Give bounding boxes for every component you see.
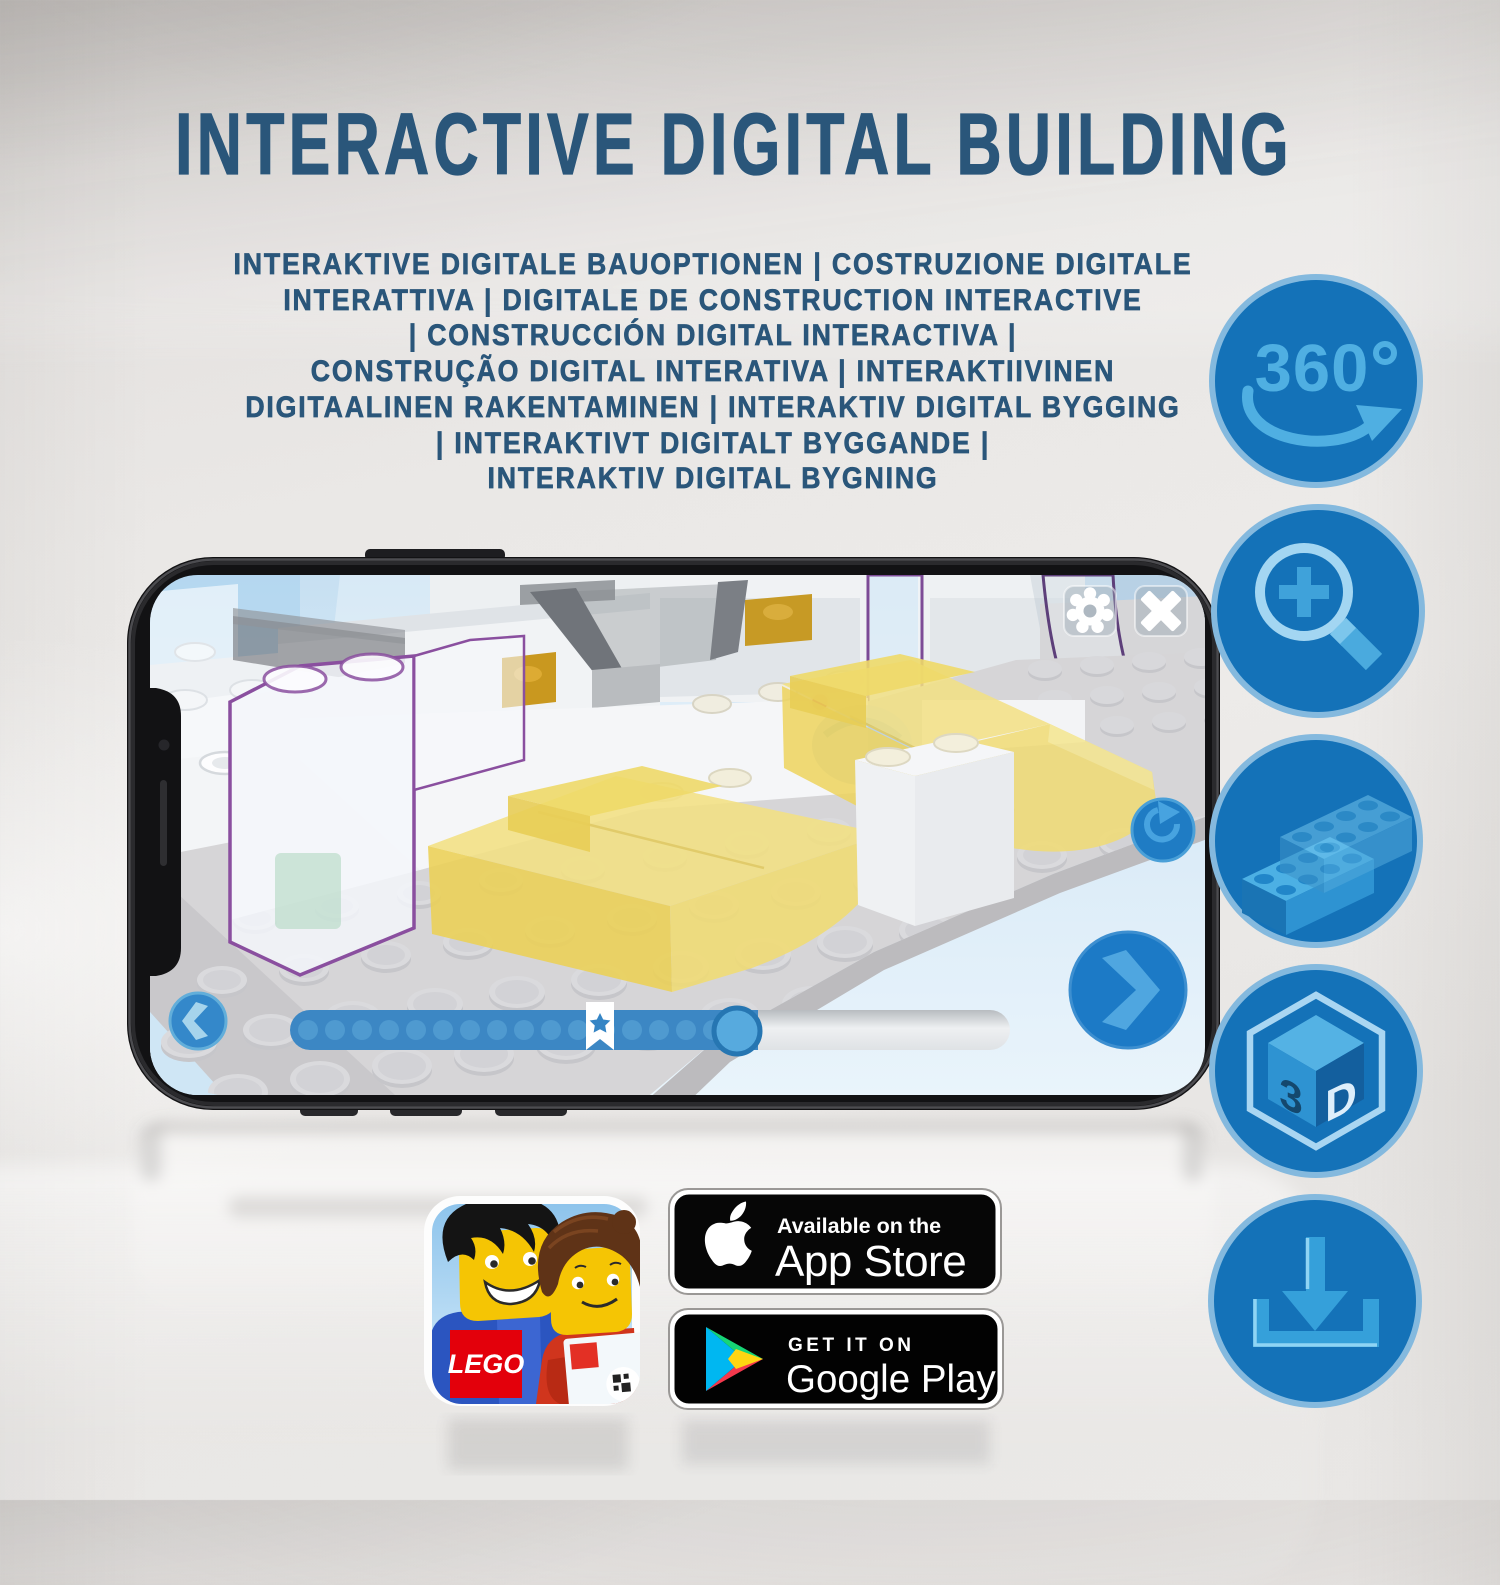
- svg-text:GET IT ON: GET IT ON: [788, 1335, 915, 1356]
- svg-text:LEGO: LEGO: [448, 1349, 525, 1379]
- svg-text:Available on the: Available on the: [777, 1214, 941, 1238]
- svg-text:360: 360: [1255, 331, 1370, 406]
- svg-text:Google Play: Google Play: [786, 1358, 996, 1401]
- svg-text:App Store: App Store: [775, 1237, 966, 1286]
